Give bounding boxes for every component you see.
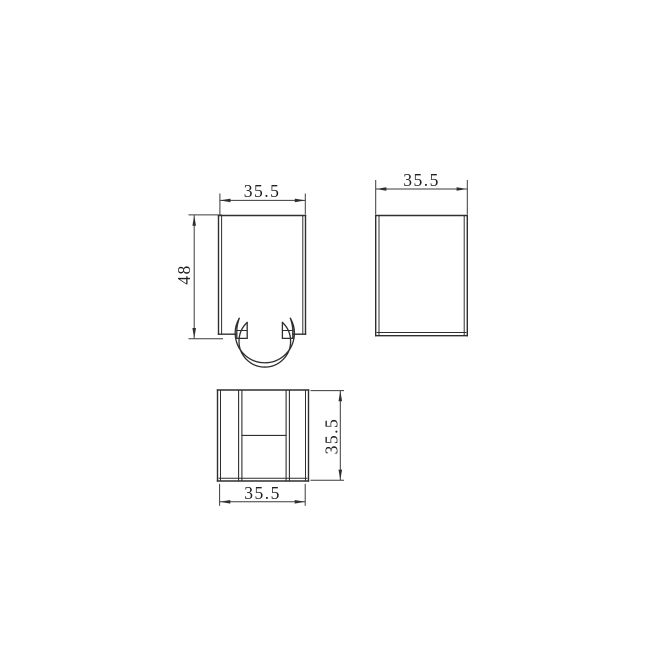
dim-front-width: 35.5 [220, 181, 305, 214]
front-view-cup-horseshoe [235, 318, 294, 367]
dim-arrow-right-icon [295, 199, 306, 203]
dim-arrow-down-icon [339, 470, 343, 481]
dim-arrow-left-icon [220, 500, 231, 504]
dim-arrow-left-icon [220, 199, 231, 203]
dim-arrow-down-icon [192, 328, 196, 339]
front-view-outline [219, 216, 306, 335]
dim-arrow-right-icon [457, 187, 468, 191]
dim-arrow-right-icon [295, 500, 306, 504]
dim-bottom-height-label: 35.5 [321, 418, 341, 455]
dim-arrow-up-icon [192, 215, 196, 226]
dim-front-height-label: 48 [174, 264, 194, 285]
orthographic-views-drawing: 35.5 48 35.5 [0, 0, 650, 650]
bottom-view-cup-walls [239, 390, 290, 481]
dim-bottom-width-label: 35.5 [244, 483, 281, 503]
technical-drawing-canvas: 35.5 48 35.5 [0, 0, 650, 650]
dim-arrow-left-icon [376, 187, 387, 191]
dim-bottom-height: 35.5 [311, 391, 345, 481]
dim-front-width-label: 35.5 [244, 181, 281, 201]
dim-arrow-up-icon [339, 391, 343, 402]
dim-side-width: 35.5 [376, 170, 468, 214]
dim-front-height: 48 [174, 215, 223, 339]
dim-bottom-width: 35.5 [220, 483, 306, 506]
dim-side-width-label: 35.5 [403, 170, 440, 190]
side-view-outline [376, 216, 468, 336]
